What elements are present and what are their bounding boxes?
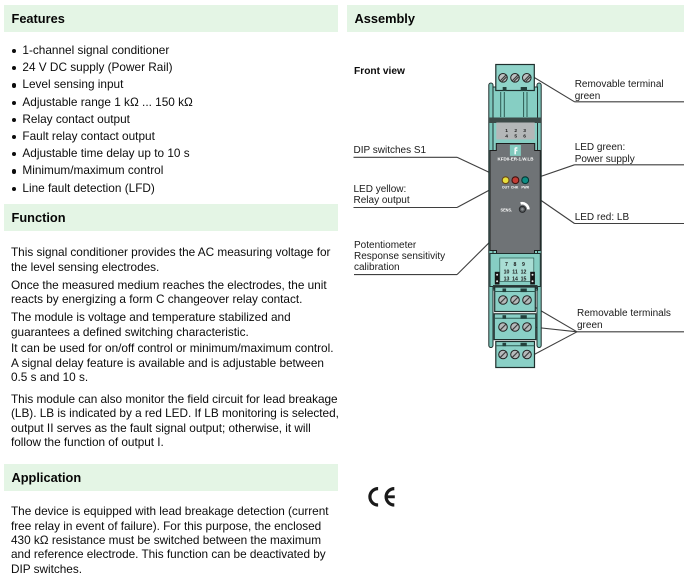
svg-text:1: 1 [505, 128, 508, 134]
svg-text:15: 15 [521, 276, 527, 282]
svg-text:CHK: CHK [511, 186, 519, 190]
svg-text:4: 4 [505, 133, 508, 139]
svg-text:OUT: OUT [502, 186, 510, 190]
svg-text:14: 14 [512, 276, 518, 282]
svg-text:13: 13 [504, 276, 510, 282]
svg-text:6: 6 [523, 133, 526, 139]
svg-text:12: 12 [521, 269, 527, 275]
svg-text:KFD0-ER-1.W.LB: KFD0-ER-1.W.LB [498, 156, 535, 162]
svg-text:2: 2 [514, 128, 517, 134]
svg-text:8: 8 [514, 262, 517, 268]
svg-text:3: 3 [523, 128, 526, 134]
svg-text:5: 5 [514, 133, 517, 139]
svg-text:11: 11 [512, 269, 518, 275]
svg-text:9: 9 [522, 262, 525, 268]
svg-text:10: 10 [504, 269, 510, 275]
svg-text:PWR: PWR [521, 186, 529, 190]
svg-text:7: 7 [505, 262, 508, 268]
svg-text:SENS.: SENS. [501, 208, 513, 213]
